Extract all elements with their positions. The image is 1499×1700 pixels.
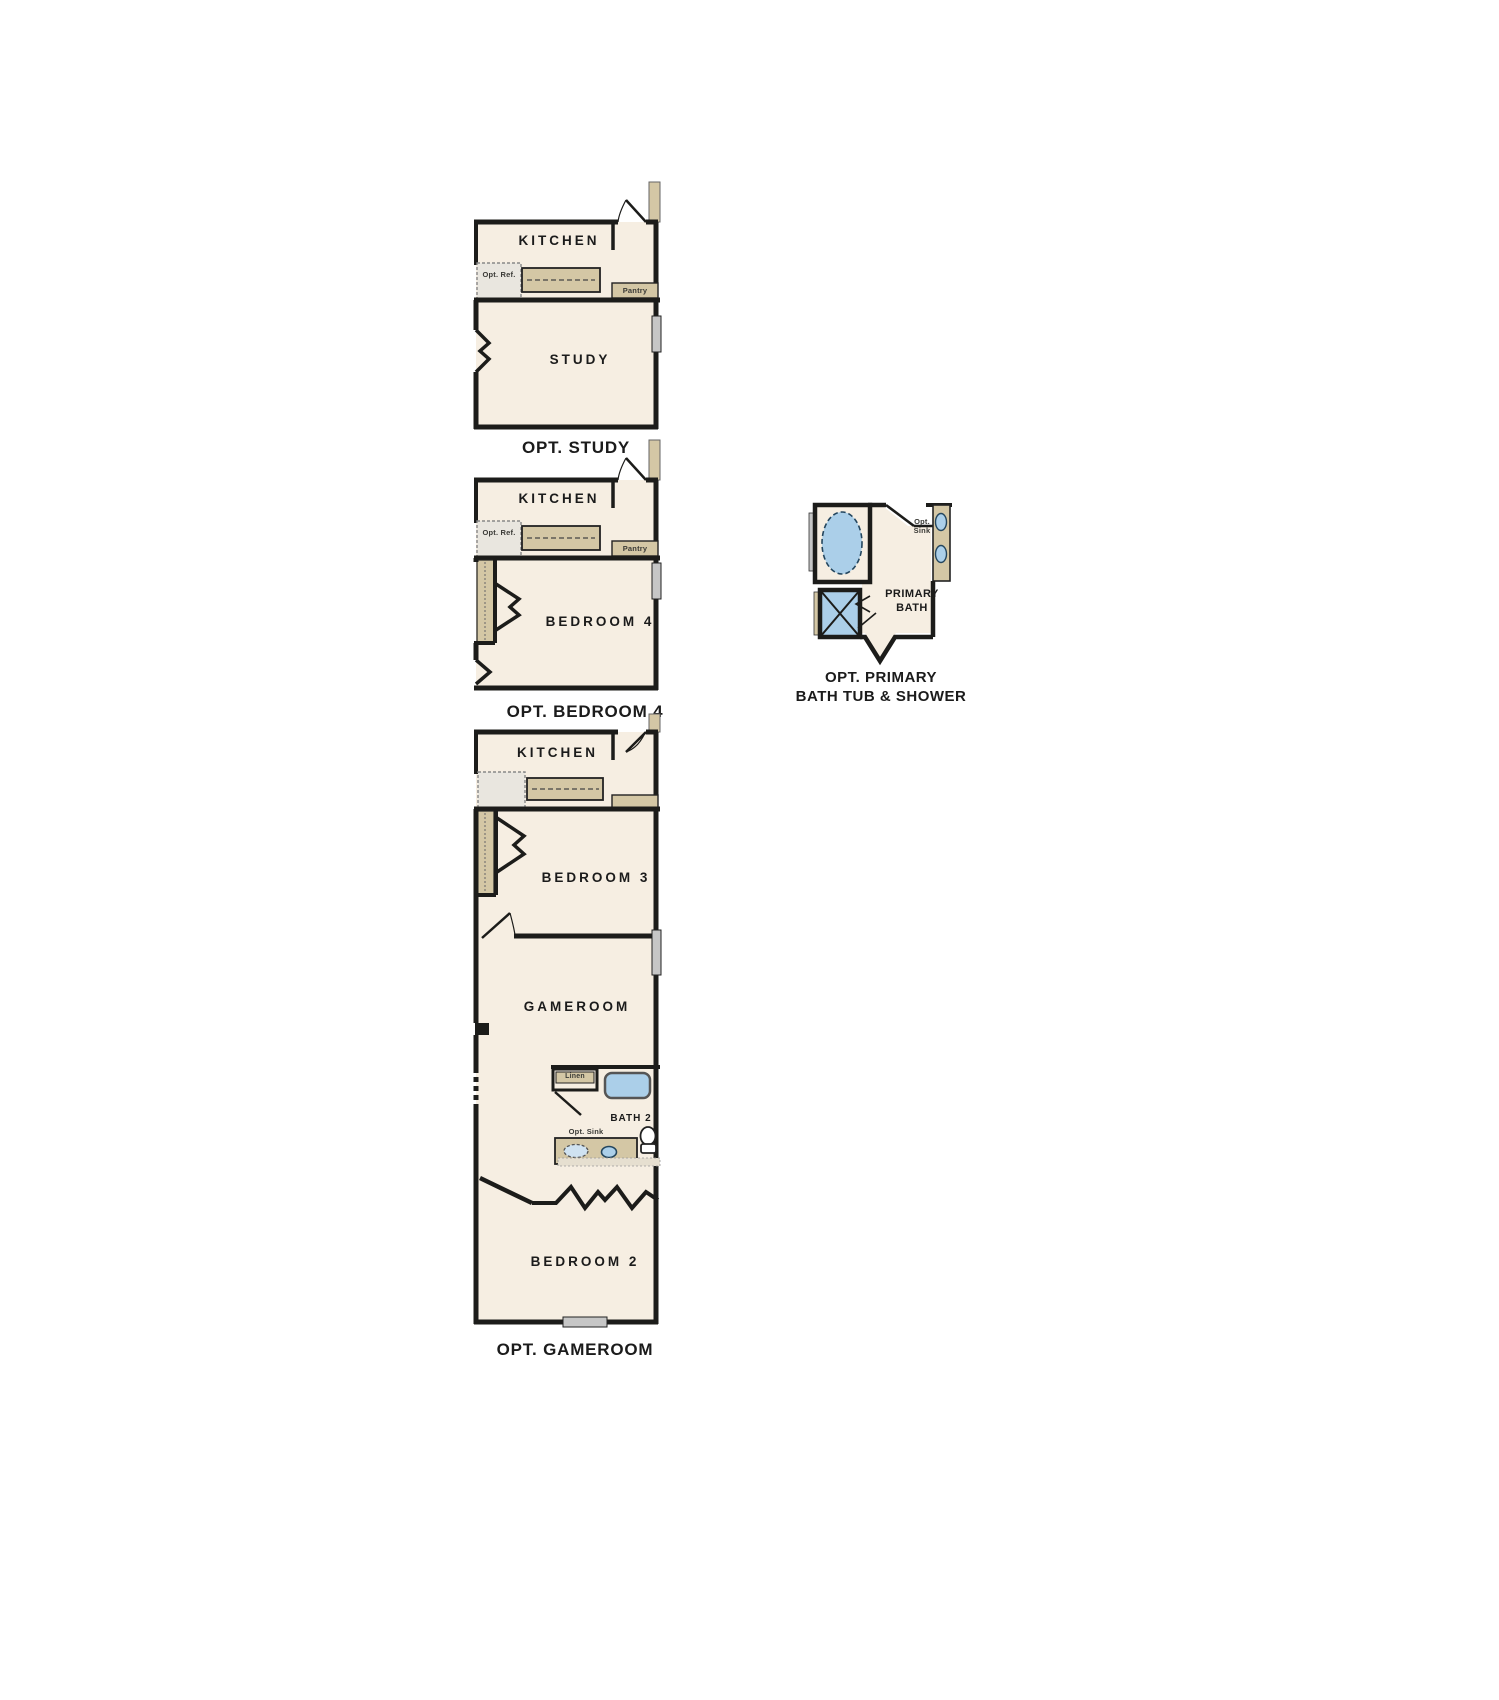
wall-continuation-tab	[649, 714, 660, 732]
study-label: STUDY	[530, 352, 630, 367]
sink-icon	[936, 546, 947, 563]
pantry-door-leaf	[626, 200, 646, 222]
opt-primary-bath-caption-line2: BATH TUB & SHOWER	[750, 688, 1012, 705]
pantry-label: Pantry	[612, 286, 658, 295]
study-floor	[476, 222, 656, 427]
opt-gameroom-floorplan-drawing	[472, 712, 672, 1336]
opt-bedroom4-plan: KITCHEN Opt. Ref. Pantry BEDROOM 4 OPT. …	[472, 438, 668, 732]
bathtub-icon	[605, 1073, 650, 1098]
sink-icon	[602, 1147, 617, 1158]
wall-continuation-tab	[649, 182, 660, 222]
bedroom4-floor	[476, 480, 656, 688]
optional-refrigerator-box	[477, 521, 521, 558]
optional-refrigerator-box	[477, 263, 521, 300]
optional-refrigerator-box	[478, 772, 525, 808]
window-marker	[652, 316, 661, 352]
shower-icon	[820, 590, 860, 637]
bedroom2-label: BEDROOM 2	[510, 1254, 660, 1269]
bath2-label: BATH 2	[602, 1113, 660, 1124]
primary-bath-label: PRIMARY BATH	[872, 588, 952, 616]
wall-continuation-tab	[649, 440, 660, 480]
floor-plan-sheet: KITCHEN Opt. Ref. Pantry STUDY OPT. STUD…	[0, 0, 1499, 1700]
kitchen-label: KITCHEN	[509, 491, 609, 506]
opt-gameroom-plan: KITCHEN BEDROOM 3 GAMEROOM Linen BATH 2 …	[472, 712, 672, 1372]
window-marker	[563, 1317, 607, 1327]
window-marker	[652, 930, 661, 975]
hatched-wall-strip	[558, 1158, 660, 1166]
pantry-door-swing-arc	[618, 200, 626, 222]
toilet-icon	[641, 1127, 657, 1153]
pantry-door-swing-arc	[618, 458, 626, 480]
gameroom-label: GAMEROOM	[512, 999, 642, 1014]
opt-study-plan: KITCHEN Opt. Ref. Pantry STUDY OPT. STUD…	[472, 180, 668, 472]
pantry-label: Pantry	[612, 544, 658, 553]
window-marker	[652, 563, 661, 599]
kitchen-label: KITCHEN	[510, 745, 605, 760]
opt-ref-label: Opt. Ref.	[477, 528, 521, 537]
sink-icon	[936, 514, 947, 531]
pantry-door-leaf	[626, 458, 646, 480]
bedroom4-label: BEDROOM 4	[535, 614, 665, 629]
opt-sink-label: Opt. Sink	[556, 1127, 616, 1136]
opt-primary-bath-caption-line1: OPT. PRIMARY	[750, 669, 1012, 686]
bedroom3-label: BEDROOM 3	[531, 870, 661, 885]
opt-primary-bath-plan: Opt. Sink PRIMARY BATH OPT. PRIMARY BATH…	[750, 455, 1012, 717]
wall-jog	[475, 1023, 489, 1035]
optional-sink-icon	[564, 1145, 588, 1158]
opt-bedroom4-floorplan-drawing	[472, 438, 668, 698]
linen-label: Linen	[556, 1073, 594, 1082]
opt-study-floorplan-drawing	[472, 180, 668, 438]
bathtub-icon	[822, 512, 862, 574]
kitchen-label: KITCHEN	[509, 233, 609, 248]
opt-ref-label: Opt. Ref.	[477, 270, 521, 279]
opt-sink-label: Opt. Sink	[908, 517, 936, 536]
opt-primary-bath-floorplan-drawing	[750, 455, 1012, 667]
opt-gameroom-caption: OPT. GAMEROOM	[480, 1340, 670, 1360]
